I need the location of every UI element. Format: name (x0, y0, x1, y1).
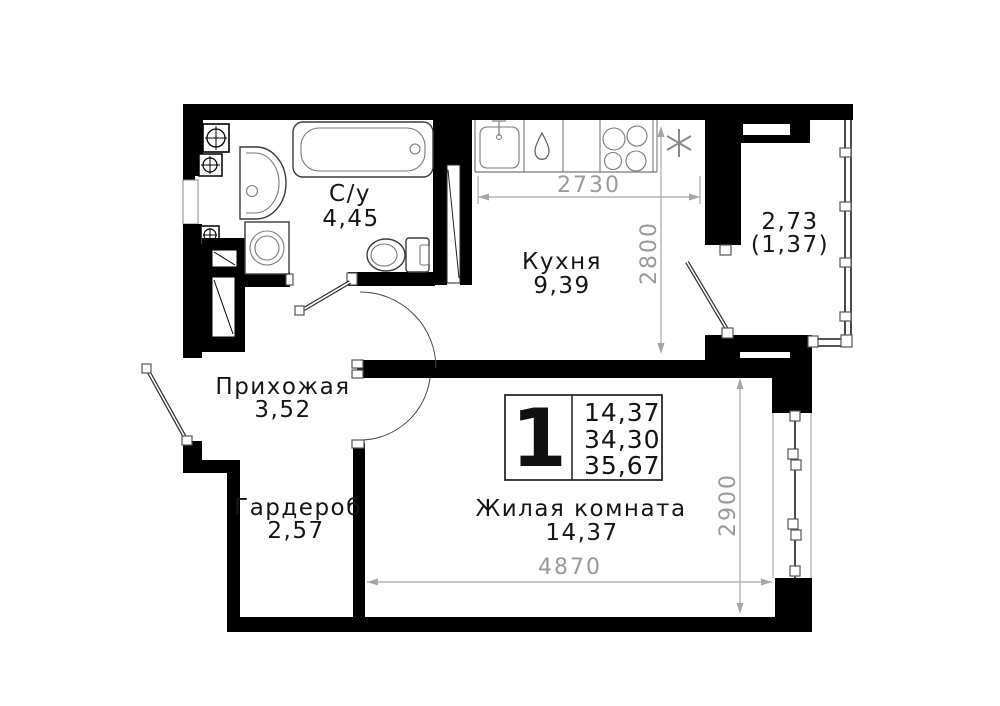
vent-shaft-icon (199, 154, 222, 176)
room-area-wardrobe: 2,57 (267, 518, 324, 544)
dim-living-depth: 2900 (716, 378, 744, 614)
bathroom-door (295, 282, 350, 315)
toilet (367, 238, 429, 272)
info-box-living-area: 14,37 (584, 398, 661, 427)
room-area-kitchen: 9,39 (533, 273, 590, 299)
stove-burners (603, 126, 647, 171)
room-area-hallway: 3,52 (254, 397, 311, 423)
dim-kitchen-width: 2730 (478, 173, 700, 204)
dim-living-width-text: 4870 (538, 555, 602, 580)
washing-machine (245, 222, 289, 274)
fridge-snowflake-icon (667, 129, 691, 157)
vent-shaft-icon (203, 124, 229, 152)
kitchen-sink (480, 121, 519, 168)
room-area-living: 14,37 (545, 520, 618, 546)
bath-sink (240, 147, 286, 219)
closet-shaft (202, 238, 245, 352)
dim-living-width: 4870 (367, 555, 772, 586)
living-room-window (773, 411, 811, 578)
floor-plan-svg: 2730 2800 4870 2900 С/у 4,45 Кухня 9,39 … (0, 0, 1000, 706)
dishwasher-drop-icon (535, 133, 549, 159)
bathtub (293, 122, 433, 177)
room-label-bathroom: С/у (329, 181, 371, 207)
balcony-area-reduced: (1,37) (751, 232, 829, 258)
dim-kitchen-depth: 2800 (637, 126, 665, 354)
room-label-kitchen: Кухня (522, 249, 602, 275)
entrance-door (142, 364, 192, 445)
dim-kitchen-width-text: 2730 (557, 173, 621, 198)
dim-living-depth-text: 2900 (716, 473, 741, 537)
room-area-bathroom: 4,45 (322, 206, 379, 232)
info-box-area: 34,30 (584, 425, 661, 454)
room-label-living: Жилая комната (475, 496, 686, 522)
info-box-rooms-count: 1 (511, 392, 567, 485)
info-box-total-area: 35,67 (584, 451, 661, 480)
balcony-door (687, 245, 733, 338)
info-box: 1 14,37 34,30 35,67 (505, 392, 662, 485)
kitchen-counter (475, 120, 691, 172)
floor-plan-canvas: 2730 2800 4870 2900 С/у 4,45 Кухня 9,39 … (0, 0, 1000, 706)
dim-kitchen-depth-text: 2800 (637, 221, 662, 285)
